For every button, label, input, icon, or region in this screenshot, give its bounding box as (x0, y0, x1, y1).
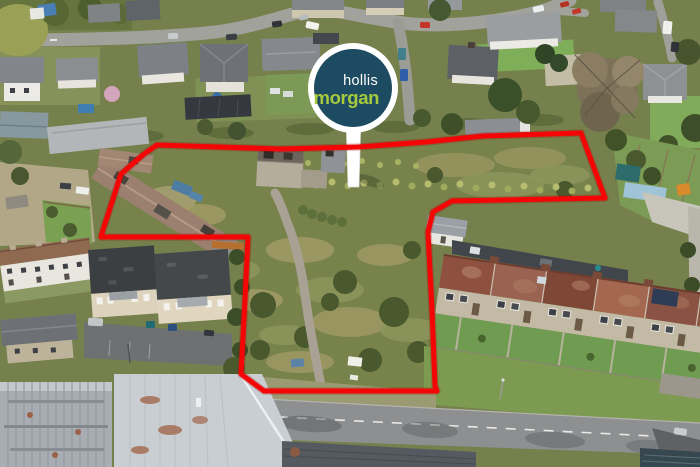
car (60, 183, 71, 190)
sign-text-morgan: morgan (314, 87, 380, 108)
stone-cottage (0, 313, 80, 363)
digger (676, 183, 691, 196)
new-build-house (88, 245, 159, 317)
car (168, 324, 177, 331)
white-van (662, 21, 672, 35)
new-build-house (154, 249, 233, 324)
hollis-morgan-disc: hollis morgan (308, 43, 398, 133)
skylight (537, 276, 547, 284)
car (204, 330, 214, 337)
sale-board (348, 356, 363, 366)
teal-shed (615, 163, 641, 182)
tarp-covered-car (291, 358, 305, 367)
blossom-tree (104, 86, 120, 102)
pool-cover (78, 104, 94, 113)
car (146, 321, 155, 328)
car (88, 318, 103, 327)
aerial-photograph: hollis morgan (0, 0, 700, 467)
